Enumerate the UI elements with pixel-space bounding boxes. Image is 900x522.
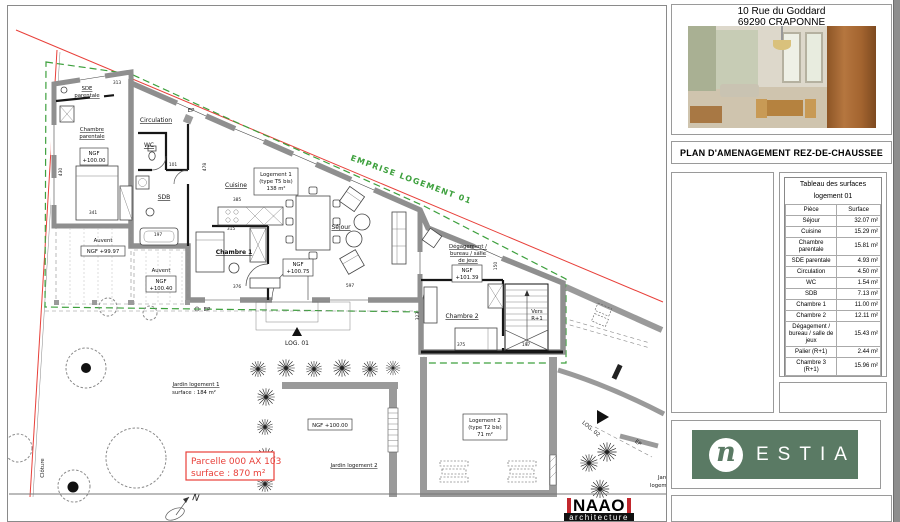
surface-cell: 12.11 m²	[837, 311, 881, 322]
dimension-label: 376	[233, 284, 242, 290]
auvent-right-label: Auvent	[152, 268, 171, 274]
table-row: Dégagement / bureau / salle de jeux15.43…	[786, 322, 881, 347]
north-label: N	[191, 493, 200, 504]
ground-symbols	[440, 461, 536, 482]
table-header-row: Pièce Surface	[786, 205, 881, 216]
surface-cell: 15.43 m²	[837, 322, 881, 347]
render-sideboard	[690, 106, 722, 123]
render-table	[763, 100, 802, 115]
entry-marker-log01	[292, 327, 302, 336]
naao-logo: NAAO architecture	[532, 498, 666, 522]
page-edge-shadow	[893, 0, 900, 522]
piece-cell: Cuisine	[786, 227, 837, 238]
table-row: Circulation4.50 m²	[786, 267, 881, 278]
floor-plan-drawing: Clôture	[8, 6, 666, 521]
render-chair-right	[805, 99, 816, 117]
table-row: SDE parentale4.93 m²	[786, 256, 881, 267]
jardin2-label: Jardin logement 2	[329, 463, 377, 469]
total-surface-value: 138.22 m²	[837, 376, 881, 378]
table-total-row: 138.22 m²	[786, 376, 881, 378]
render-green-wall	[716, 30, 757, 89]
nestia-n-glyph: n	[716, 439, 736, 466]
dimension-label: 385	[233, 197, 242, 203]
jardin2-clipped-label-2: logement 2	[650, 483, 666, 489]
piece-cell: Dégagement / bureau / salle de jeux	[786, 322, 837, 347]
address-line-1: 10 Rue du Goddard	[672, 6, 891, 17]
piece-cell: SDB	[786, 289, 837, 300]
address-panel: 10 Rue du Goddard 69290 CRAPONNE	[671, 4, 892, 135]
jardin1-label-2: surface : 184 m²	[172, 389, 216, 396]
room-label-chambre1: Chambre 1	[216, 249, 253, 256]
ep-label-1: EP	[188, 108, 195, 114]
surface-cell: 1.54 m²	[837, 278, 881, 289]
table-row: Chambre 111.00 m²	[786, 300, 881, 311]
jardin1-label: Jardin logement 1	[171, 382, 219, 388]
parcelle-label: Parcelle 000 AX 103	[191, 457, 281, 467]
table-row: Cuisine15.29 m²	[786, 227, 881, 238]
piece-cell: Séjour	[786, 216, 837, 227]
neighbour-elements: LOG. 02 EP Jardin logement 2	[558, 287, 666, 489]
logement1-label-2: (type T5 bis)	[259, 179, 293, 185]
parcelle-label-2: surface : 870 m²	[191, 469, 266, 479]
piece-cell: Chambre 2	[786, 311, 837, 322]
logement2-label-3: 71 m²	[477, 431, 493, 438]
surface-cell: 15.96 m²	[837, 358, 881, 376]
dimension-label: 150	[493, 262, 499, 271]
dimension-label: 197	[522, 342, 531, 348]
dimension-label: 478	[202, 163, 208, 172]
piece-cell: Palier (R+1)	[786, 347, 837, 358]
surface-table-panel: Tableau des surfaces logement 01 Pièce S…	[779, 172, 887, 377]
table-row: Palier (R+1)2.44 m²	[786, 347, 881, 358]
render-left-wall	[688, 26, 716, 91]
sheet-title-panel: PLAN D'AMENAGEMENT REZ-DE-CHAUSSEE	[671, 141, 892, 164]
nestia-wordmark: ESTIA	[756, 444, 856, 466]
ngf-parentale-2: +100.00	[83, 158, 107, 164]
empty-panel	[671, 172, 774, 413]
surface-table-title-2: logement 01	[785, 190, 881, 205]
vers-r1-label-2: R+1	[531, 316, 543, 322]
logement1-label-3: 138 m²	[266, 185, 285, 192]
room-label-chambre-parentale-2: parentale	[79, 134, 104, 140]
ngf-auvent-right-2: +100.40	[150, 286, 174, 292]
floor-plan-panel: Clôture	[7, 5, 667, 522]
col-header-piece: Pièce	[786, 205, 837, 216]
surface-cell: 2.44 m²	[837, 347, 881, 358]
entry-label-log01: LOG. 01	[285, 340, 309, 347]
room-label-sde-2: parentale	[74, 93, 99, 99]
room-label-chambre2: Chambre 2	[445, 313, 478, 320]
empty-bottom-panel	[671, 495, 892, 522]
table-row: Séjour32.07 m²	[786, 216, 881, 227]
table-row: SDB7.13 m²	[786, 289, 881, 300]
dimension-label: 375	[457, 342, 466, 348]
surface-cell: 11.00 m²	[837, 300, 881, 311]
ngf-auvent-right: NGF	[155, 279, 166, 285]
table-row: Chambre 212.11 m²	[786, 311, 881, 322]
piece-cell: SDE parentale	[786, 256, 837, 267]
col-header-surface: Surface	[837, 205, 881, 216]
naao-logo-subtext: architecture	[564, 513, 634, 522]
room-label-wc: WC	[144, 142, 154, 149]
surface-cell: 15.29 m²	[837, 227, 881, 238]
dimension-label: 430	[58, 168, 64, 177]
vers-r1-label: Vers	[531, 309, 543, 315]
nestia-circle-icon: n	[709, 438, 743, 472]
surface-cell: 15.81 m²	[837, 238, 881, 256]
room-label-sde: SDE	[82, 86, 93, 92]
render-chair-left	[756, 99, 767, 117]
room-label-circulation: Circulation	[140, 117, 172, 124]
surface-table: Tableau des surfaces logement 01 Pièce S…	[784, 177, 882, 377]
piece-cell: Circulation	[786, 267, 837, 278]
fence-label: Clôture	[39, 458, 46, 478]
render-sofa	[720, 84, 759, 97]
naao-red-bar-left	[567, 498, 571, 513]
nestia-panel: n ESTIA	[671, 420, 881, 489]
room-label-chambre-parentale: Chambre	[80, 127, 104, 133]
document-page: Clôture	[0, 0, 893, 522]
surface-table-title: Tableau des surfaces	[785, 178, 881, 190]
table-row: WC1.54 m²	[786, 278, 881, 289]
piece-cell: Chambre 3 (R+1)	[786, 358, 837, 376]
interior-render-image	[688, 26, 876, 128]
ngf-auvent-left: NGF +99.97	[87, 249, 119, 255]
surface-cell: 4.93 m²	[837, 256, 881, 267]
naao-logo-text: NAAO	[573, 498, 625, 513]
piece-cell: Chambre parentale	[786, 238, 837, 256]
nestia-logo: n ESTIA	[692, 430, 858, 479]
north-arrow: N	[164, 493, 200, 521]
logement2-label-2: (type T2 bis)	[468, 425, 502, 431]
dimension-label: 197	[154, 232, 163, 238]
ngf-parentale: NGF	[88, 151, 99, 157]
naao-red-bar-right	[627, 498, 631, 513]
auvent-left-label: Auvent	[94, 238, 113, 244]
ngf-sejour-2: +100.75	[287, 269, 310, 275]
piece-cell: Chambre 1	[786, 300, 837, 311]
empty-small-panel	[779, 382, 887, 413]
dimension-label: 341	[89, 210, 98, 216]
surface-cell: 7.13 m²	[837, 289, 881, 300]
ep-label-2: EP	[204, 307, 211, 313]
surface-cell: 32.07 m²	[837, 216, 881, 227]
ngf-sejour: NGF	[292, 262, 303, 268]
sheet-title: PLAN D'AMENAGEMENT REZ-DE-CHAUSSEE	[680, 148, 883, 158]
entry-marker-log02	[597, 410, 609, 424]
dimension-label: 313	[113, 80, 122, 86]
room-label-cuisine: Cuisine	[225, 182, 247, 189]
dimension-label: 323	[415, 312, 421, 321]
ngf-degagement-2: +101.39	[456, 275, 479, 281]
jardin2-clipped-label-1: Jardin	[657, 475, 666, 481]
render-wardrobe	[827, 26, 876, 128]
logement1-label: Logement 1	[260, 172, 292, 178]
logement2-label: Logement 2	[469, 418, 501, 424]
total-row-empty-cell	[786, 376, 837, 378]
table-row: Chambre parentale15.81 m²	[786, 238, 881, 256]
room-label-degagement-2: bureau / salle	[450, 251, 486, 257]
ngf-jardin: NGF +100.00	[312, 423, 348, 429]
table-row: Chambre 3 (R+1)15.96 m²	[786, 358, 881, 376]
dimension-label: 597	[346, 283, 355, 289]
dimension-label: 315	[227, 226, 236, 232]
room-label-sdb: SDB	[158, 194, 171, 201]
ngf-degagement: NGF	[461, 268, 472, 274]
surface-cell: 4.50 m²	[837, 267, 881, 278]
room-label-sejour: Séjour	[331, 224, 351, 231]
piece-cell: WC	[786, 278, 837, 289]
garden-stairs	[388, 408, 398, 452]
dimension-label: 101	[169, 162, 178, 168]
render-window-2	[805, 32, 824, 83]
room-label-degagement: Dégagement /	[449, 243, 487, 250]
room-label-degagement-3: de jeux	[458, 258, 478, 264]
